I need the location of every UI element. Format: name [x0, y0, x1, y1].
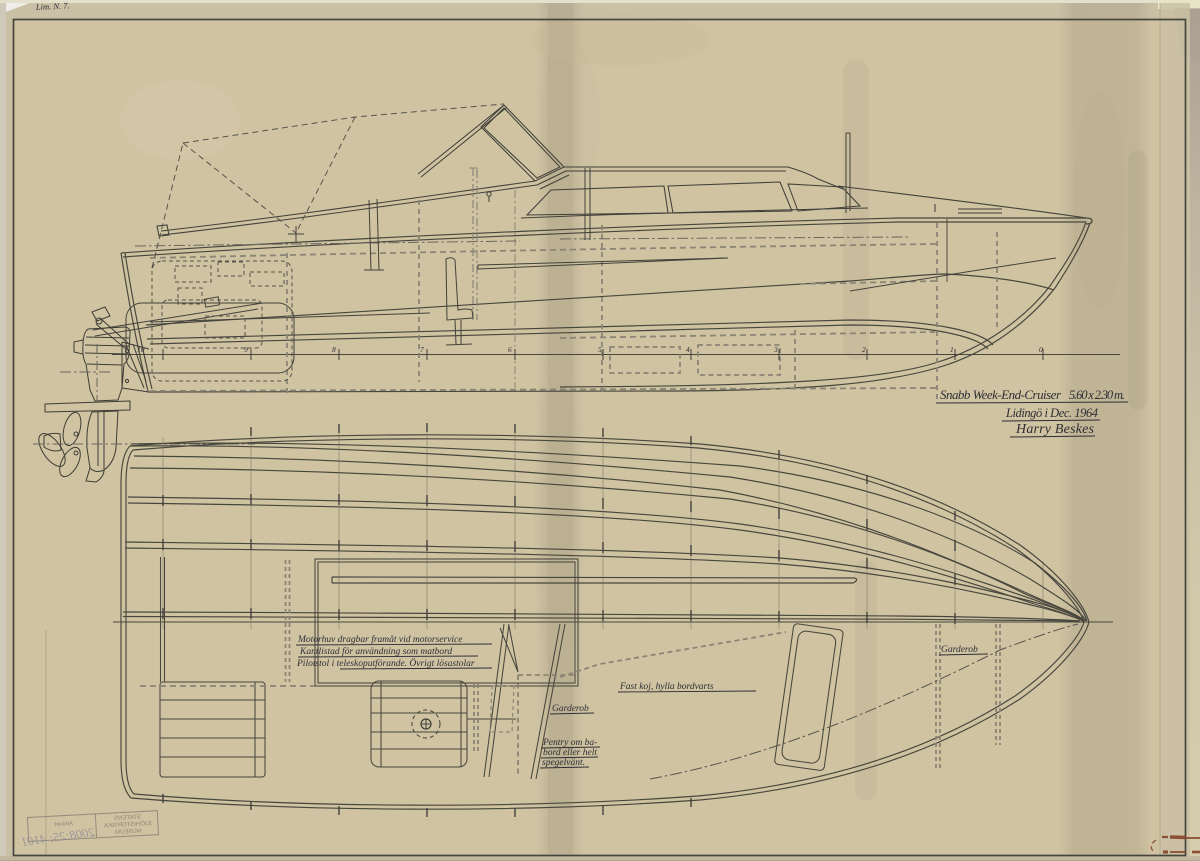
- svg-text:5: 5: [598, 345, 602, 354]
- svg-text:bord eller helt: bord eller helt: [543, 748, 597, 758]
- svg-text:Harry Beskes: Harry Beskes: [1015, 422, 1095, 437]
- svg-text:7: 7: [420, 345, 424, 354]
- svg-text:Kantlistad för användning som: Kantlistad för användning som matbord: [299, 646, 452, 657]
- svg-text:Fast koj, hylla bordvarts: Fast koj, hylla bordvarts: [619, 682, 714, 692]
- svg-text:spegelvänt.: spegelvänt.: [542, 758, 585, 768]
- svg-text:Pentry om ba-: Pentry om ba-: [542, 738, 597, 748]
- svg-text:2: 2: [862, 345, 866, 354]
- svg-text:8: 8: [332, 345, 336, 354]
- svg-text:Garderob: Garderob: [552, 704, 589, 714]
- svg-text:Garderob: Garderob: [941, 645, 978, 655]
- svg-text:Lidingö i Dec. 1964: Lidingö i Dec. 1964: [1005, 406, 1098, 420]
- svg-text:4: 4: [686, 345, 690, 354]
- svg-text:9: 9: [244, 345, 248, 354]
- svg-text:Arkivet: Arkivet: [54, 821, 73, 828]
- svg-text:6: 6: [508, 345, 512, 354]
- svg-text:Motorhuv dragbar framåt vid mo: Motorhuv dragbar framåt vid motorservice: [297, 634, 462, 645]
- svg-text:Pilotstol i teleskoputförande.: Pilotstol i teleskoputförande. Övrigt lö…: [296, 657, 475, 669]
- svg-text:1: 1: [950, 345, 954, 354]
- svg-text:5.60 x 2.30 m.: 5.60 x 2.30 m.: [1069, 388, 1125, 402]
- svg-text:Lim. N. 7.: Lim. N. 7.: [35, 0, 70, 12]
- svg-text:0: 0: [1039, 345, 1043, 354]
- svg-text:3: 3: [773, 345, 778, 354]
- svg-text:Snabb Week-End-Cruiser: Snabb Week-End-Cruiser: [940, 387, 1062, 402]
